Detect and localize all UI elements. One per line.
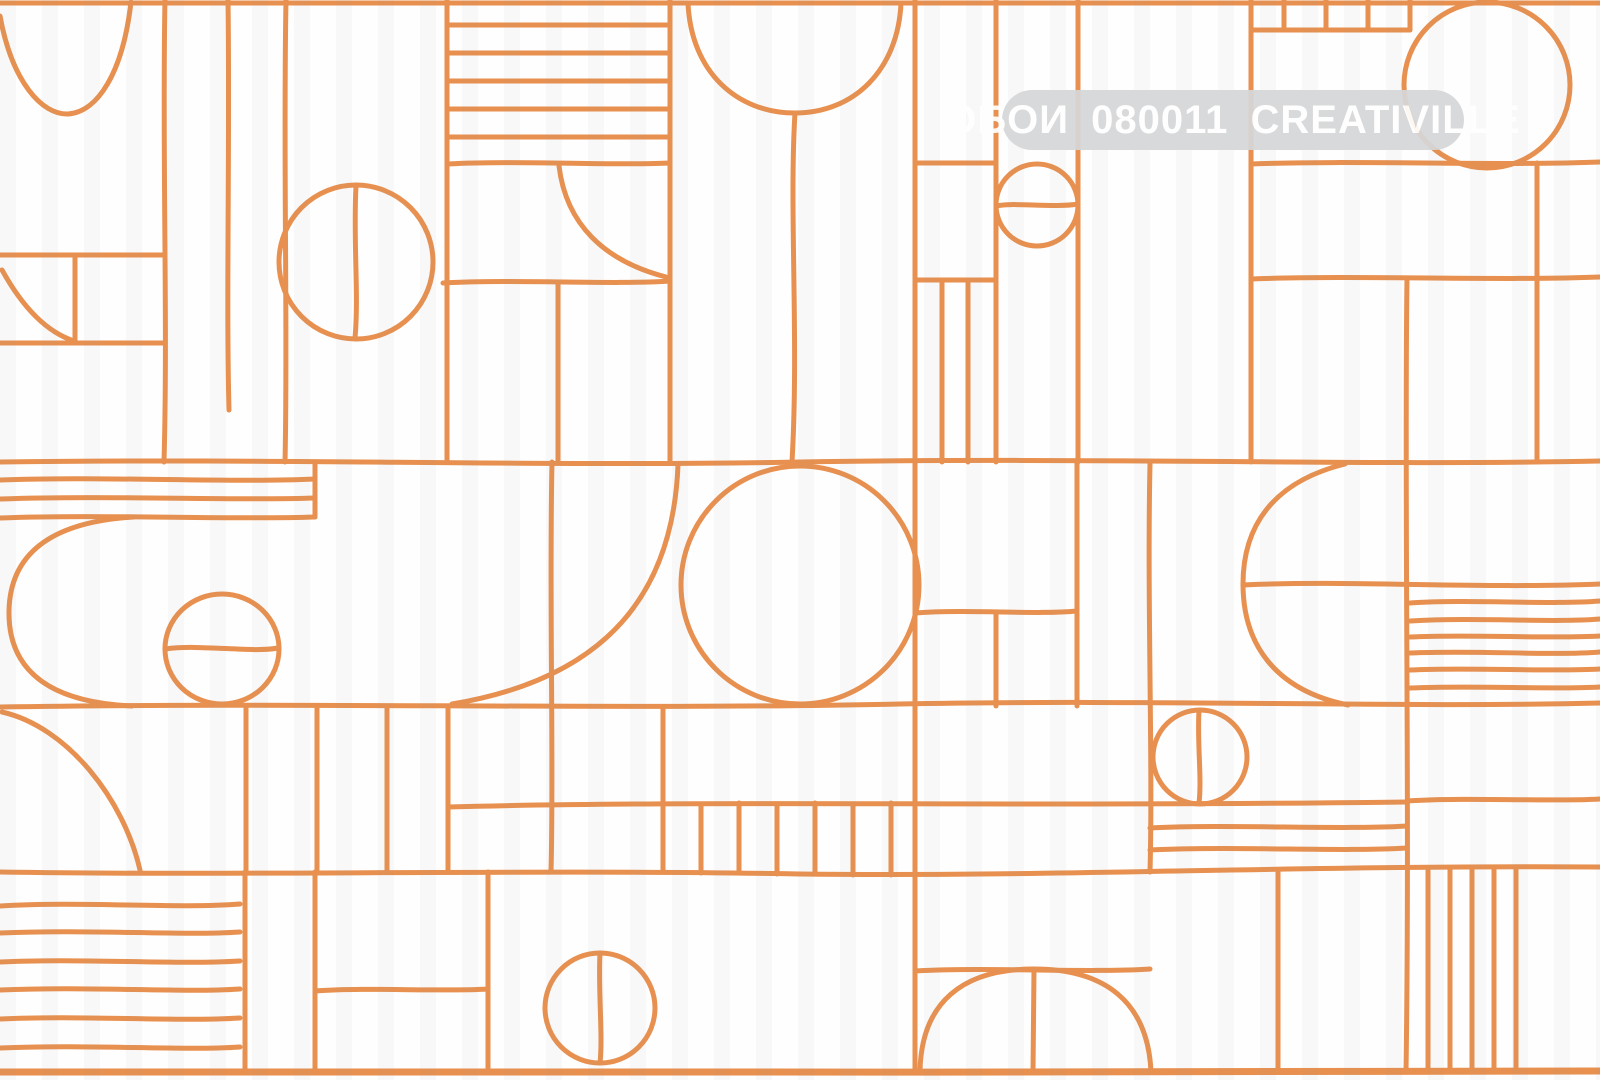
stripe-line — [0, 479, 315, 481]
vertical-line — [1149, 464, 1151, 872]
stripe-line — [1410, 619, 1600, 621]
stripe-line — [0, 1047, 240, 1049]
midline — [1243, 583, 1600, 585]
balloon-trunk — [792, 113, 795, 462]
cell-divider — [1407, 799, 1600, 801]
vertical-line — [551, 462, 552, 872]
vertical-line — [1406, 278, 1407, 1072]
stripe-line — [1150, 826, 1407, 828]
wallpaper-sample: ОБОИ 080011 CREATIVILLE — [0, 0, 1600, 1080]
vertical-line — [164, 0, 165, 462]
stripe-line — [0, 1018, 240, 1020]
corner-sweep-arc — [2, 712, 140, 870]
row-line-1 — [0, 460, 1600, 463]
quarter-arc — [559, 166, 666, 277]
tile-bottom-border — [0, 1071, 1600, 1072]
circle-diameter-line — [997, 204, 1078, 206]
cell-divider — [1251, 162, 1600, 164]
watermark-text: ОБОИ 080011 CREATIVILLE — [945, 98, 1520, 143]
stripe-line — [0, 932, 240, 934]
stripe-line — [0, 989, 240, 991]
stripe-line — [1410, 652, 1600, 653]
long-divider — [448, 802, 1407, 807]
watermark-badge: ОБОИ 080011 CREATIVILLE — [1002, 90, 1464, 150]
small-box-arc — [2, 270, 74, 341]
vertical-line — [228, 0, 229, 410]
balloon-circle — [688, 3, 901, 113]
top-left-bowl-arc — [0, 2, 131, 114]
pattern-canvas — [0, 0, 1600, 1080]
cell-divider — [1251, 277, 1600, 279]
row-line-3 — [0, 867, 1600, 875]
stripe-line — [1410, 687, 1600, 688]
stripe-line — [1410, 669, 1600, 670]
circle-diameter-line — [165, 647, 278, 649]
big-ball-circle — [681, 466, 919, 704]
cell-divider — [315, 989, 488, 991]
stripe-line — [0, 517, 315, 518]
circle-diameter-line — [355, 186, 356, 338]
stripe-line — [0, 961, 240, 963]
stripe-line — [0, 904, 240, 906]
circle-diameter-line — [1199, 711, 1200, 803]
stripe-line — [1150, 848, 1407, 850]
stripe-line — [1410, 636, 1600, 637]
stripe-line — [1410, 601, 1600, 603]
capsule-cap-arc — [9, 517, 134, 706]
dome-center-line — [1033, 969, 1034, 1072]
sweep-arc — [452, 465, 678, 704]
stripe-line — [0, 498, 315, 499]
circle-diameter-line — [600, 953, 601, 1063]
